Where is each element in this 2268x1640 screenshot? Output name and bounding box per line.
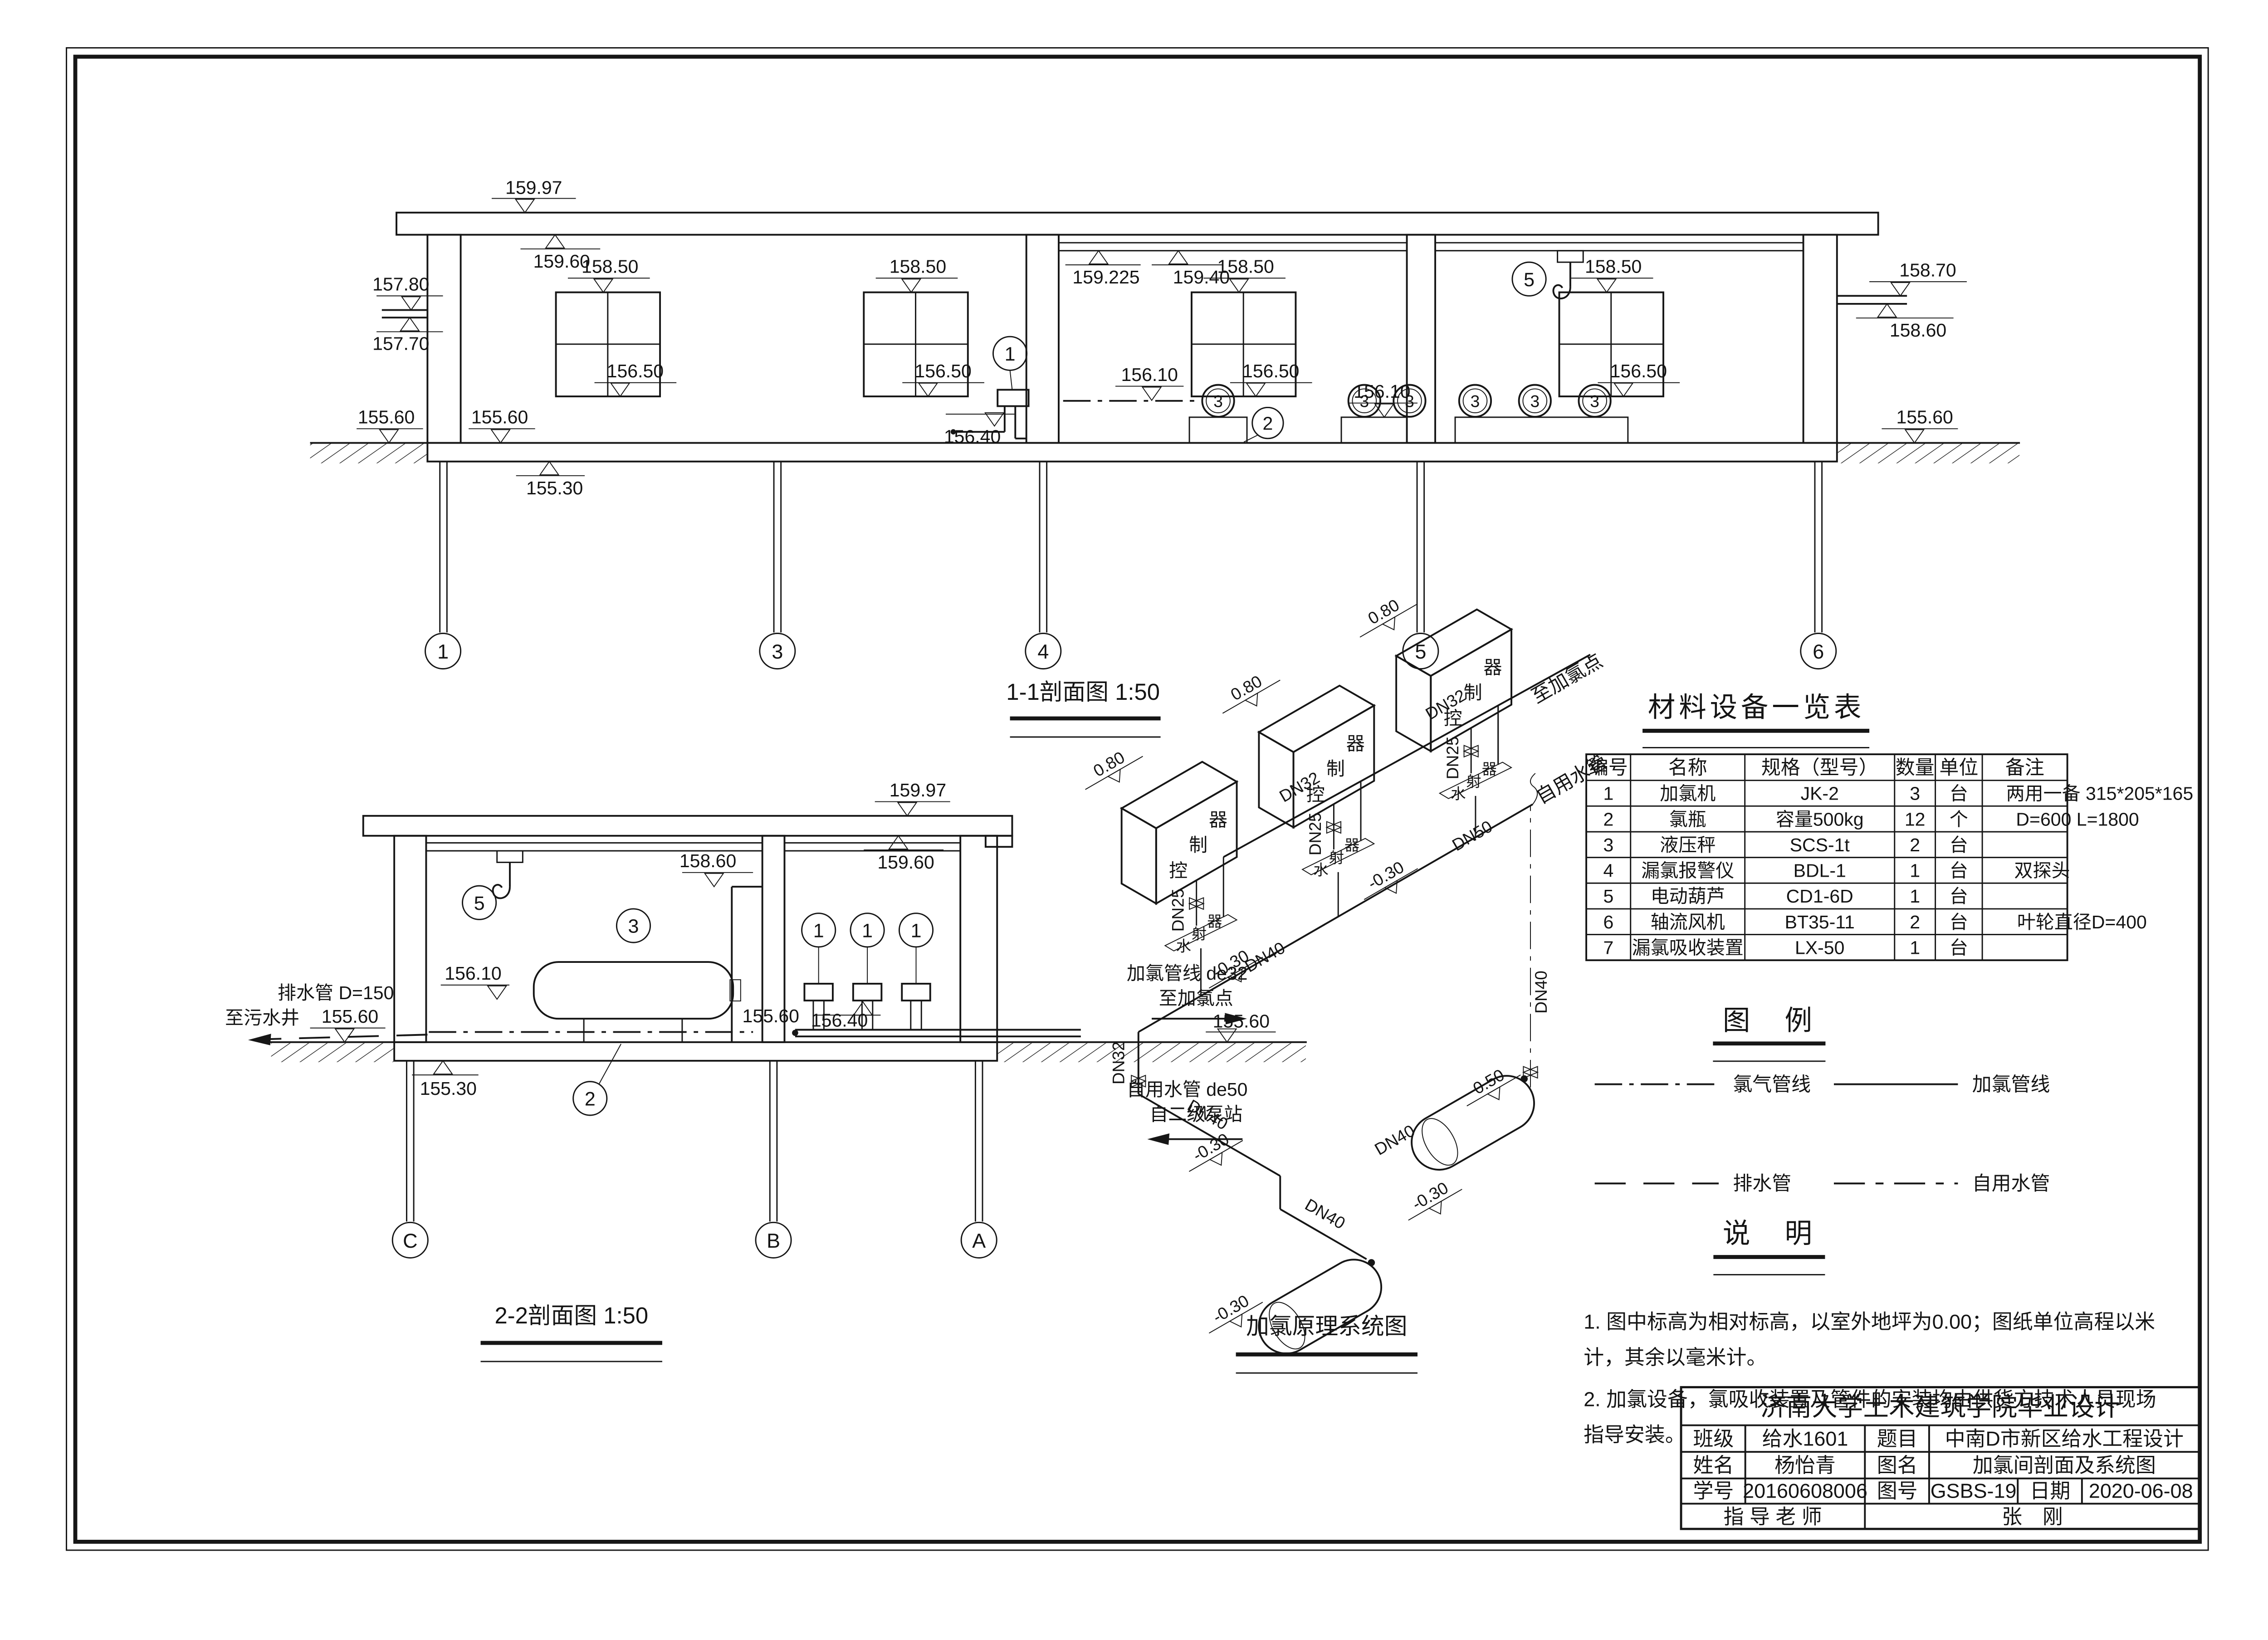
elevation-label: 158.70 [1899, 259, 1956, 280]
elevation-label: 156.40 [811, 1010, 868, 1031]
elevation-label: 158.50 [1585, 256, 1642, 277]
table-cell: BT35-11 [1785, 912, 1855, 932]
table-cell: JK-2 [1801, 783, 1839, 804]
scale-platform [1455, 417, 1628, 443]
jet-label: 水 [1314, 862, 1329, 879]
grid-bubble: C [403, 1229, 417, 1252]
box-label: 控 [1444, 708, 1462, 729]
chlorinator-box: 器 制 控 0.80 DN25 器 射 水 [1075, 739, 1237, 996]
table-cell: 1 [1910, 937, 1920, 958]
table-row: 5 电动葫芦 CD1-6D 1 台 [1603, 886, 1968, 907]
chlorine-bottle: 3 [1459, 385, 1491, 417]
legend-label: 排水管 [1733, 1173, 1791, 1195]
section-2-2: 159.97 159.60 5 158.60 3 156.10 [225, 780, 1307, 1362]
table-cell: 台 [1950, 912, 1968, 932]
table-cell: 个 [1950, 809, 1968, 830]
table-cell: 电动葫芦 [1651, 886, 1725, 907]
grid-lines-1-1: 1 3 4 5 6 [425, 462, 1836, 669]
annotation: 至加氯点 [1528, 650, 1607, 708]
jet-label: 射 [1192, 926, 1207, 942]
grid-lines-2-2: C B A [392, 1061, 997, 1258]
table-cell: 叶轮直径D=400 [2017, 912, 2147, 932]
equipment-tag: 3 [628, 916, 639, 937]
grid-bubble: 1 [437, 640, 449, 663]
chlorine-bottle: 3 [1579, 385, 1610, 417]
elevation-label: 156.10 [1354, 381, 1410, 402]
legend-label: 加氯管线 [1972, 1074, 2050, 1095]
elevation-label: 155.30 [420, 1078, 477, 1099]
legend-item: 自用水管 [1834, 1173, 2050, 1195]
equipment-tag: 5 [1524, 269, 1535, 291]
iso-elevation: -0.30 [1354, 851, 1423, 909]
scale-platform [1341, 417, 1407, 443]
legend: 图 例 氯气管线 加氯管线 排水管 自用水管 [1595, 1005, 2050, 1195]
ground-hatch-left [310, 444, 427, 464]
ground-hatch-left [271, 1043, 394, 1062]
legend-item: 排水管 [1595, 1173, 1792, 1195]
section-caption: 1-1剖面图 1:50 [1006, 679, 1160, 705]
elevation-label: 155.60 [1213, 1011, 1270, 1032]
hoist-hook: 5 [1512, 251, 1583, 298]
elevation-label: 155.60 [322, 1006, 378, 1027]
field-value: GSBS-19 [1931, 1479, 2017, 1503]
pipe-label: DN25 [1443, 736, 1462, 779]
box-label: 制 [1464, 682, 1482, 703]
legend-title: 图 例 [1723, 1005, 1816, 1036]
note-line: 计，其余以毫米计。 [1584, 1346, 1767, 1369]
table-cell: 漏氯吸收装置 [1632, 937, 1744, 958]
table-cell: 加氯机 [1660, 783, 1716, 804]
cylinder-supply-piping: DN32 DN40 DN40 -0.30 -0.30 -0.30 DN40 [1109, 806, 1551, 1342]
section-caption: 2-2剖面图 1:50 [494, 1303, 648, 1328]
box-label: 控 [1169, 860, 1188, 881]
elevation-label: 156.10 [1121, 364, 1178, 385]
elevation-label: 156.40 [944, 426, 1001, 447]
roof-slab [363, 816, 1012, 836]
grid-bubble: 3 [772, 640, 783, 663]
jet-label: 器 [1207, 913, 1222, 930]
table-cell: 台 [1950, 886, 1968, 907]
elevation-label: 159.97 [505, 177, 562, 198]
field-label: 日期 [2030, 1479, 2071, 1503]
roof-slab [396, 213, 1878, 235]
note-line: 指导安装。 [1584, 1423, 1686, 1446]
equipment-tag: 3 [1471, 391, 1480, 410]
field-label: 学号 [1693, 1479, 1734, 1503]
table-row: 6 轴流风机 BT35-11 2 台 叶轮直径D=400 [1603, 912, 2146, 932]
legend-item: 氯气管线 [1595, 1074, 1811, 1095]
box-label: 控 [1306, 784, 1325, 805]
notes-title: 说 明 [1723, 1218, 1816, 1249]
table-header: 编号 [1589, 757, 1628, 779]
ground-hatch-right [998, 1043, 1306, 1062]
grid-bubble: A [972, 1229, 986, 1252]
equipment-tag: 1 [862, 920, 873, 942]
jet-label: 射 [1466, 773, 1481, 790]
table-cell: 3 [1910, 783, 1920, 804]
elevation-label: 155.60 [1896, 407, 1953, 428]
chlorinator-assembly: 1 156.40 [944, 337, 1029, 447]
elevation-label: 156.50 [1610, 361, 1667, 381]
table-cell: 1 [1603, 783, 1613, 804]
table-cell: 液压秤 [1660, 835, 1716, 855]
grid-bubble: 4 [1037, 640, 1049, 663]
field-value: 20160608006 [1743, 1479, 1867, 1503]
wall-right [1804, 235, 1837, 443]
hoist-hook: 5 [463, 851, 523, 919]
table-cell: BDL-1 [1794, 860, 1846, 881]
jet-label: 射 [1329, 849, 1344, 866]
box-label: 器 [1346, 733, 1365, 754]
table-cell: 双探头 [2014, 860, 2070, 881]
table-cell: 氯瓶 [1669, 809, 1706, 830]
scale-platform [584, 1019, 682, 1042]
box-label: 制 [1189, 835, 1207, 855]
table-cell: 1 [1910, 886, 1920, 907]
chlorine-bottle: 3 [1202, 385, 1234, 417]
equipment-tag: 3 [1590, 391, 1599, 410]
field-value: 2020-06-08 [2089, 1479, 2193, 1503]
field-value: 加氯间剖面及系统图 [1973, 1454, 2156, 1477]
elevation-label: 155.30 [526, 478, 583, 498]
wall-pipe-stub: 157.80 157.70 [372, 274, 443, 354]
legend-label: 氯气管线 [1733, 1074, 1811, 1095]
table-cell: 容量500kg [1776, 809, 1864, 830]
table-cell: D=600 L=1800 [2016, 809, 2139, 830]
table-cell: 7 [1603, 937, 1613, 958]
wall-grid4 [1026, 235, 1059, 443]
equipment-tag: 1 [911, 920, 922, 942]
table-cell: 1 [1910, 860, 1920, 881]
elevation-label: 157.80 [372, 274, 429, 295]
door-canopy: 158.70 158.60 [1837, 259, 1967, 341]
scale-platform [1189, 417, 1247, 443]
chlorinator-row: 1 1 1 156.40 155.60 [743, 913, 1081, 1036]
table-row: 4 漏氯报警仪 BDL-1 1 台 双探头 [1603, 860, 2070, 881]
legend-item: 加氯管线 [1834, 1074, 2050, 1095]
jet-label: 水 [1451, 786, 1466, 803]
equipment-tag: 5 [474, 893, 485, 914]
note-line: 1. 图中标高为相对标高，以室外地坪为0.00；图纸单位高程以米 [1584, 1310, 2155, 1333]
jet-label: 器 [1344, 837, 1359, 854]
elevation-label: 158.60 [1890, 320, 1946, 341]
elevation-label: 156.50 [607, 361, 664, 381]
elevation-label: 158.50 [582, 256, 638, 277]
table-cell: 漏氯报警仪 [1641, 860, 1734, 881]
field-value: 张 刚 [2002, 1505, 2063, 1528]
table-cell: CD1-6D [1786, 886, 1853, 907]
field-value: 给水1601 [1762, 1427, 1848, 1450]
floor-slab [394, 1042, 997, 1061]
ground-hatch-right [1838, 444, 2019, 464]
field-label: 指 导 老 师 [1724, 1505, 1822, 1528]
elevation-label: 159.225 [1072, 267, 1139, 288]
elevation-label: 158.60 [679, 850, 736, 871]
table-row: 1 加氯机 JK-2 3 台 两用一备 315*205*165 [1603, 783, 2193, 804]
table-cell: SCS-1t [1790, 835, 1850, 855]
wall-right [960, 836, 997, 1042]
elevation-label: 159.60 [877, 852, 934, 873]
table-header: 数量 [1896, 757, 1935, 779]
field-value: 中南D市新区给水工程设计 [1945, 1427, 2184, 1450]
elevation-label: 155.60 [471, 407, 528, 428]
annotation: 至污水井 [225, 1007, 299, 1028]
table-cell: 6 [1603, 912, 1613, 932]
pipe-label: DN50 [1449, 816, 1496, 854]
box-label: 器 [1484, 657, 1502, 678]
elevation-label: 156.50 [914, 361, 971, 381]
table-header: 单位 [1939, 757, 1978, 779]
table-row: 3 液压秤 SCS-1t 2 台 [1603, 835, 1968, 855]
field-label: 题目 [1877, 1427, 1918, 1450]
drawing-sheet: 159.97 159.60 159.225 159.40 158.50 156.… [0, 0, 2268, 1601]
table-cell: 2 [1910, 835, 1920, 855]
grid-bubble: B [767, 1229, 780, 1252]
table-cell: 台 [1950, 835, 1968, 855]
chlorine-bottle: 3 [1519, 385, 1551, 417]
pipe-label: DN40 [1531, 971, 1550, 1014]
annotation: 排水管 D=150 [278, 982, 394, 1003]
jet-label: 水 [1176, 938, 1191, 955]
elevation-label: 155.60 [358, 407, 415, 428]
elevation-label: 158.50 [1217, 256, 1274, 277]
table-cell: 2 [1603, 809, 1613, 830]
field-label: 姓名 [1693, 1454, 1734, 1477]
table-header: 名称 [1668, 757, 1707, 779]
elevation-label: 156.50 [1242, 361, 1299, 381]
jet-label: 器 [1482, 761, 1497, 778]
field-label: 图号 [1877, 1479, 1918, 1503]
table-cell: 轴流风机 [1651, 912, 1725, 932]
table-cell: 台 [1950, 860, 1968, 881]
table-cell: 台 [1950, 783, 1968, 804]
table-header: 规格（型号） [1761, 757, 1878, 779]
field-value: 杨怡青 [1774, 1454, 1836, 1477]
equipment-tag: 2 [585, 1088, 596, 1110]
equipment-tag: 1 [813, 920, 824, 942]
table-row: 7 漏氯吸收装置 LX-50 1 台 [1603, 937, 1968, 958]
elevation-label: 158.50 [890, 256, 946, 277]
pipe-label: DN25 [1168, 888, 1187, 932]
table-cell: LX-50 [1795, 937, 1844, 958]
chlorine-cylinder [1249, 1248, 1394, 1363]
floor-slab [427, 443, 1837, 462]
drain-annotation: 排水管 D=150 至污水井 155.60 [225, 982, 427, 1045]
equipment-tag: 3 [1530, 391, 1540, 410]
field-label: 图名 [1877, 1454, 1918, 1477]
equipment-tag: 1 [1005, 343, 1016, 365]
pipe-label: DN40 [1302, 1195, 1349, 1233]
table-cell: 2 [1910, 912, 1920, 932]
wall-left [427, 235, 460, 443]
equipment-tag: 3 [1213, 391, 1223, 410]
wall-left [394, 836, 426, 1042]
elevation-label: 155.60 [743, 1005, 799, 1026]
table-cell: 5 [1603, 886, 1613, 907]
equipment-tag: 2 [1263, 413, 1273, 434]
box-label: 器 [1209, 809, 1227, 830]
legend-label: 自用水管 [1972, 1173, 2050, 1195]
school-title: 济南大学土木建筑学院毕业设计 [1760, 1393, 2120, 1421]
bottle-room-equipment: 156.10 3 2 3 3 156.10 3 [1063, 364, 1628, 443]
section-caption: 加氯原理系统图 [1246, 1313, 1407, 1339]
table-cell: 两用一备 315*205*165 [2006, 783, 2194, 804]
bottle-on-scale: 3 156.10 2 [429, 909, 753, 1115]
elevation-label: 157.70 [372, 333, 429, 354]
table-cell: 3 [1603, 835, 1613, 855]
elevation-label: 159.97 [890, 780, 946, 800]
elevation-marker: 155.60 155.60 155.60 155.30 [357, 407, 1958, 498]
pipe-label: DN40 [1184, 1096, 1231, 1134]
pipe-label: DN32 [1109, 1041, 1128, 1084]
table-title: 材料设备一览表 [1648, 692, 1865, 722]
box-label: 制 [1326, 758, 1345, 779]
table-cell: 12 [1905, 809, 1926, 830]
table-row: 2 氯瓶 容量500kg 12 个 D=600 L=1800 [1603, 809, 2139, 830]
pipe-label: DN25 [1305, 812, 1325, 855]
elevation-label: 156.10 [445, 963, 501, 984]
table-header: 备注 [2005, 757, 2044, 779]
section-1-1: 159.97 159.60 159.225 159.40 158.50 156.… [310, 177, 2020, 737]
table-cell: 台 [1950, 937, 1968, 958]
field-label: 班级 [1693, 1427, 1734, 1450]
grid-bubble: 6 [1813, 640, 1824, 663]
table-cell: 4 [1603, 860, 1613, 881]
cad-canvas: 159.97 159.60 159.225 159.40 158.50 156.… [0, 0, 2268, 1601]
material-table: 材料设备一览表 编号 名称 规格（型号） 数量 单位 备注 1 加氯机 JK-2… [1586, 692, 2193, 960]
